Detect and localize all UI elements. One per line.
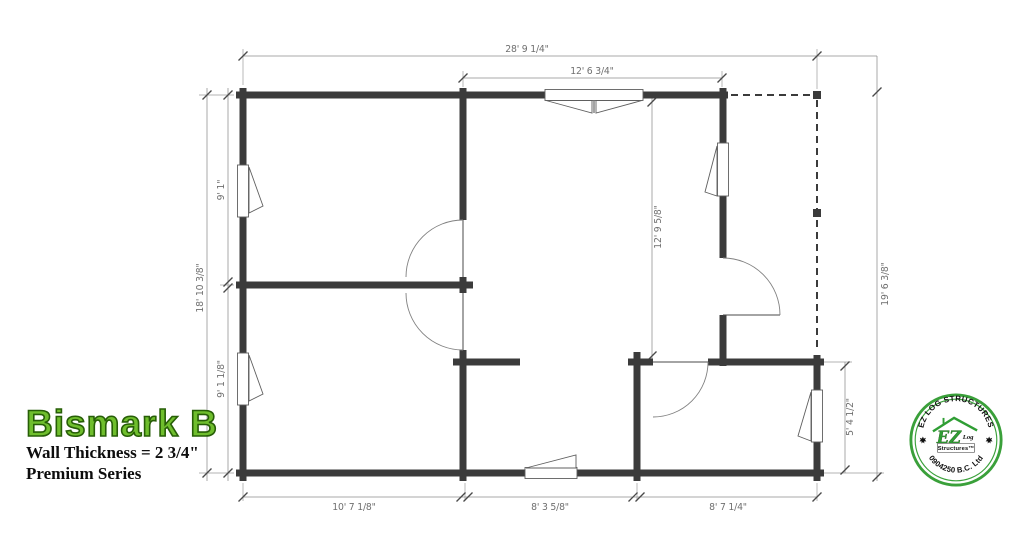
dimension-lines	[207, 56, 877, 497]
dimension-label-right-room: 5' 4 1/2"	[845, 398, 856, 436]
window-bottom	[525, 468, 577, 479]
stamp-ez-text: EZ	[936, 428, 962, 447]
title-block: Bismark B Wall Thickness = 2 3/4" Premiu…	[26, 405, 218, 483]
series-label: Premium Series	[26, 464, 218, 484]
stamp-structures-text: Structures™	[938, 446, 975, 452]
floor-plan-page: 28' 9 1/4" 12' 6 3/4" 18' 10 3/8" 9' 1" …	[0, 0, 1024, 554]
window-left-upper	[238, 165, 249, 217]
window-interior-right	[718, 143, 729, 196]
dimension-label-interior-vertical: 12' 9 5/8"	[653, 205, 664, 248]
dimension-label-bottom-left: 10' 7 1/8"	[332, 502, 375, 513]
window-sash	[249, 355, 263, 401]
window-sash	[526, 455, 576, 468]
window-sash	[596, 101, 642, 114]
window-sash	[705, 146, 717, 196]
window-sash	[798, 392, 811, 441]
dimension-label-left-overall: 18' 10 3/8"	[195, 263, 206, 312]
wall-thickness-label: Wall Thickness = 2 3/4"	[26, 443, 218, 463]
dimension-ticks	[203, 52, 882, 502]
dimension-label-top-inner: 12' 6 3/4"	[570, 66, 613, 77]
window-right-room	[812, 390, 823, 442]
porch-post	[813, 209, 821, 217]
door-swing	[653, 362, 708, 417]
door-swing	[406, 293, 463, 350]
stamp-log-text: Log	[962, 434, 974, 441]
door-swing	[406, 220, 463, 277]
porch-post	[813, 91, 821, 99]
window-sash	[249, 167, 263, 213]
window-top-double	[545, 90, 643, 101]
company-stamp: EZ LOG STRUCTURES 0904250 B.C. Ltd EZ Lo…	[908, 392, 1004, 488]
dimension-label-bottom-middle: 8' 3 5/8"	[531, 502, 569, 513]
dimension-labels: 28' 9 1/4" 12' 6 3/4" 18' 10 3/8" 9' 1" …	[195, 44, 891, 513]
extension-lines	[199, 49, 884, 501]
dimension-label-bottom-right: 8' 7 1/4"	[709, 502, 747, 513]
walls	[236, 88, 824, 481]
window-left-lower	[238, 353, 249, 405]
porch-outline	[731, 91, 821, 350]
dimension-label-right-overall: 19' 6 3/8"	[880, 262, 891, 305]
dimension-label-top-overall: 28' 9 1/4"	[505, 44, 548, 55]
window-sash	[546, 101, 592, 114]
dimension-label-left-lower: 9' 1 1/8"	[216, 360, 227, 398]
door-swing	[723, 258, 780, 315]
dimension-label-left-upper: 9' 1"	[216, 180, 227, 201]
page-title: Bismark B	[26, 405, 218, 442]
